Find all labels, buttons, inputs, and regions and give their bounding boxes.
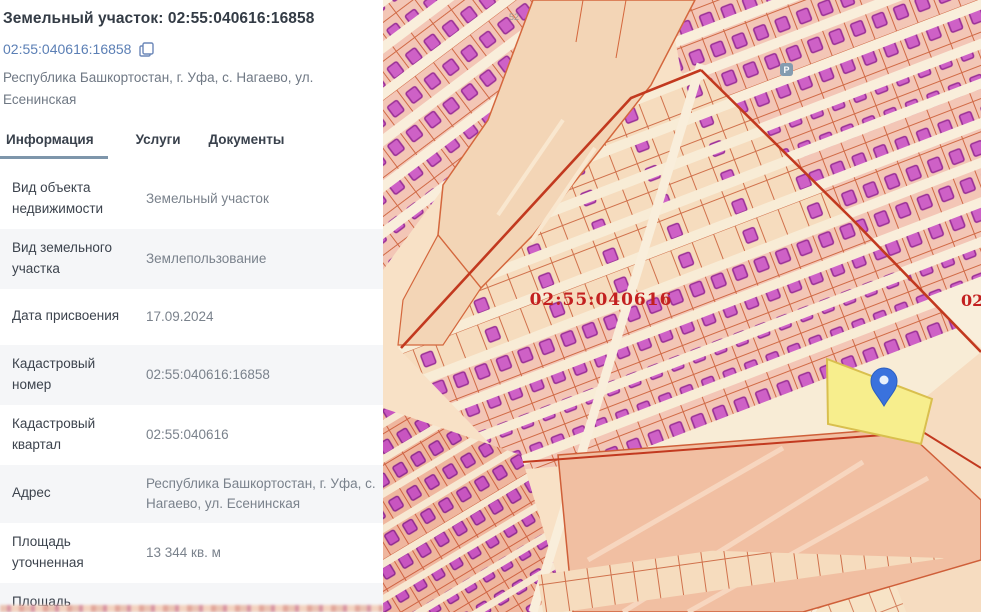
object-address: Республика Башкортостан, г. Уфа, с. Нага…: [3, 67, 348, 110]
row-label: Вид земельного участка: [12, 238, 130, 280]
table-row: Адрес Республика Башкортостан, г. Уфа, с…: [0, 465, 383, 524]
row-label: Дата присвоения: [12, 306, 130, 327]
table-row: Кадастровый квартал 02:55:040616: [0, 405, 383, 465]
row-value: Республика Башкортостан, г. Уфа, с. Нага…: [130, 474, 377, 515]
table-row: Площадь уточненная 13 344 кв. м: [0, 523, 383, 583]
row-value: 02:55:040616: [130, 425, 377, 445]
row-value: Земельный участок: [130, 189, 377, 209]
tab-documents[interactable]: Документы: [209, 126, 285, 159]
table-row: Кадастровый номер 02:55:040616:16858: [0, 345, 383, 405]
row-value: 17.09.2024: [130, 307, 377, 327]
parcel-number-label: 52: [509, 12, 519, 22]
tab-information[interactable]: Информация: [0, 126, 108, 159]
row-label: Кадастровый квартал: [12, 414, 130, 456]
row-label: Кадастровый номер: [12, 354, 130, 396]
row-value: 13 344 кв. м: [130, 543, 377, 563]
map-strip: [0, 605, 383, 612]
parking-icon: P: [780, 63, 793, 76]
table-row: Вид земельного участка Землепользование: [0, 229, 383, 289]
tab-bar: Информация Услуги Документы: [0, 126, 383, 159]
quarter-label-partial: 02: [961, 291, 981, 310]
row-label: Вид объекта недвижимости: [12, 178, 130, 220]
cadastral-number-link[interactable]: 02:55:040616:16858: [3, 41, 131, 57]
row-label: Площадь уточненная: [12, 532, 130, 574]
row-value: 02:55:040616:16858: [130, 365, 377, 385]
row-label: Адрес: [12, 483, 130, 504]
tab-services[interactable]: Услуги: [136, 126, 181, 159]
screen: Земельный участок: 02:55:040616:16858 02…: [0, 0, 981, 612]
svg-text:P: P: [783, 65, 789, 75]
info-table: Вид объекта недвижимости Земельный участ…: [0, 169, 383, 612]
copy-icon[interactable]: [139, 42, 154, 57]
cadastral-map[interactable]: P 52 02:55:040616 02: [383, 0, 981, 612]
table-row: Дата присвоения 17.09.2024: [0, 289, 383, 345]
details-panel: Земельный участок: 02:55:040616:16858 02…: [0, 0, 383, 605]
row-value: Землепользование: [130, 249, 377, 269]
quarter-label: 02:55:040616: [530, 290, 673, 310]
page-title: Земельный участок: 02:55:040616:16858: [3, 10, 379, 28]
cadastral-number-row: 02:55:040616:16858: [3, 41, 379, 57]
table-row: Вид объекта недвижимости Земельный участ…: [0, 169, 383, 229]
